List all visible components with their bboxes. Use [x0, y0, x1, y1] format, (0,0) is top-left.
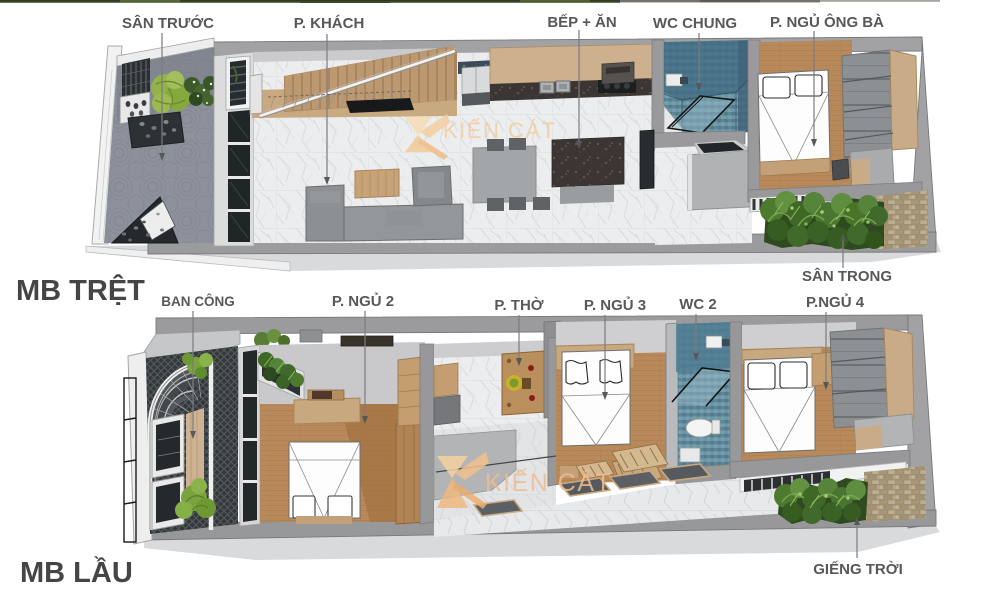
svg-text:P. NGỦ 3: P. NGỦ 3	[584, 296, 646, 314]
svg-text:WC CHUNG: WC CHUNG	[653, 15, 737, 32]
svg-text:P. NGỦ ÔNG BÀ: P. NGỦ ÔNG BÀ	[770, 13, 884, 31]
svg-text:MB LẦU: MB LẦU	[20, 555, 133, 589]
svg-text:BAN CÔNG: BAN CÔNG	[161, 294, 235, 309]
svg-text:KIẾN CÁT: KIẾN CÁT	[443, 118, 556, 143]
svg-text:SÂN TRƯỚC: SÂN TRƯỚC	[122, 14, 214, 32]
svg-text:WC 2: WC 2	[679, 296, 717, 313]
svg-text:BẾP + ĂN: BẾP + ĂN	[547, 14, 616, 31]
svg-text:P. NGỦ 2: P. NGỦ 2	[332, 292, 394, 310]
svg-text:MB TRỆT: MB TRỆT	[16, 273, 145, 307]
svg-text:P.NGỦ 4: P.NGỦ 4	[806, 293, 865, 311]
svg-text:SÂN TRONG: SÂN TRONG	[802, 267, 892, 285]
svg-text:P. THỜ: P. THỜ	[494, 296, 543, 314]
svg-text:P. KHÁCH: P. KHÁCH	[294, 15, 365, 32]
svg-text:KIẾN CÁT: KIẾN CÁT	[485, 468, 612, 497]
svg-text:GIẾNG TRỜI: GIẾNG TRỜI	[813, 560, 902, 578]
